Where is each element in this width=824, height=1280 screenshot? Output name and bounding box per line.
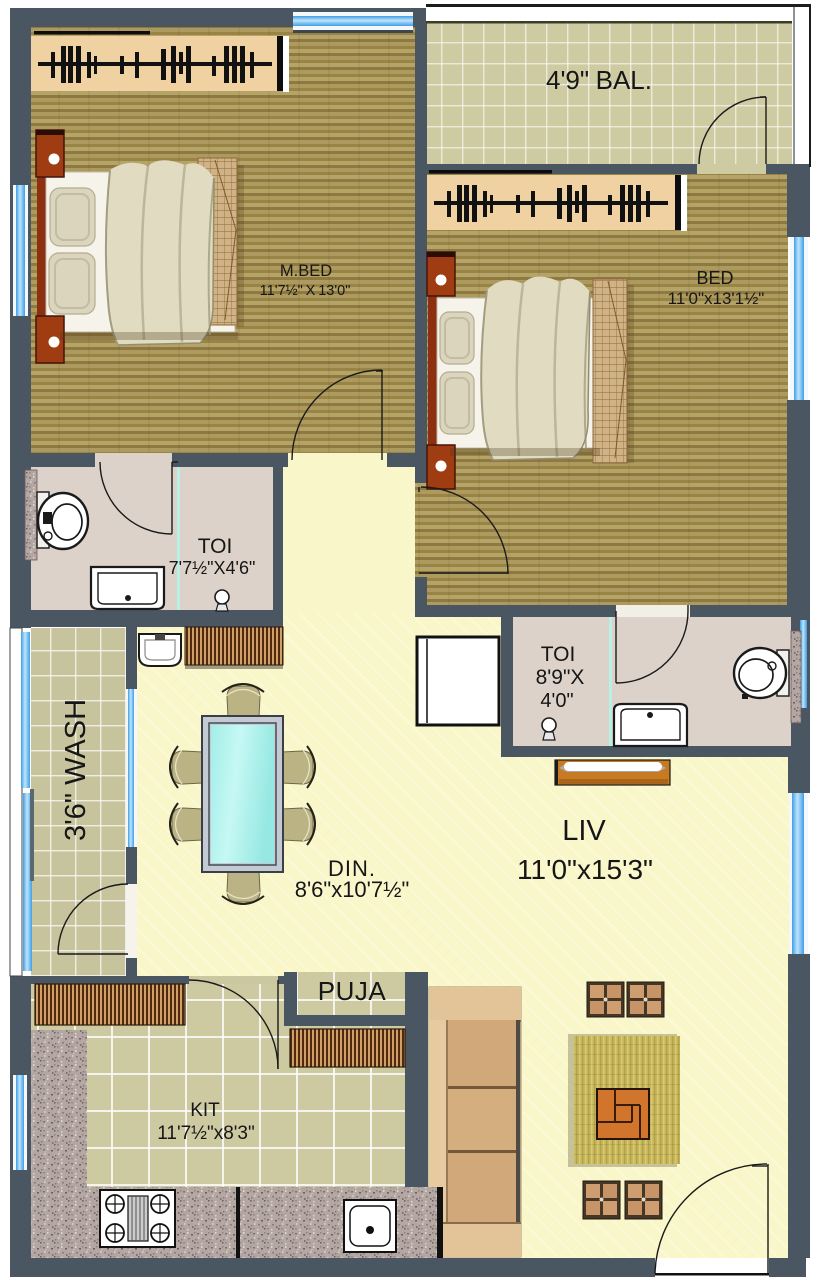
svg-text:11'0"x13'1½": 11'0"x13'1½" [668,289,765,308]
svg-text:LIV: LIV [562,815,606,847]
svg-text:PUJA: PUJA [318,976,387,1006]
svg-text:8'9"X: 8'9"X [536,666,585,689]
svg-text:KIT: KIT [190,1100,220,1121]
svg-text:4'9" BAL.: 4'9" BAL. [546,65,652,95]
svg-text:11'0"x15'3": 11'0"x15'3" [517,854,653,885]
svg-text:TOI: TOI [198,535,233,558]
svg-text:3'6" WASH: 3'6" WASH [60,699,92,841]
svg-text:TOI: TOI [541,643,576,666]
svg-text:11'7½"x8'3": 11'7½"x8'3" [157,1123,255,1144]
svg-text:BED: BED [696,268,733,288]
svg-text:M.BED: M.BED [280,262,332,280]
svg-text:8'6"x10'7½": 8'6"x10'7½" [295,877,410,902]
svg-text:4'0": 4'0" [540,690,573,712]
svg-text:11'7½" X 13'0": 11'7½" X 13'0" [260,283,351,299]
svg-text:7'7½"X4'6": 7'7½"X4'6" [169,558,256,578]
